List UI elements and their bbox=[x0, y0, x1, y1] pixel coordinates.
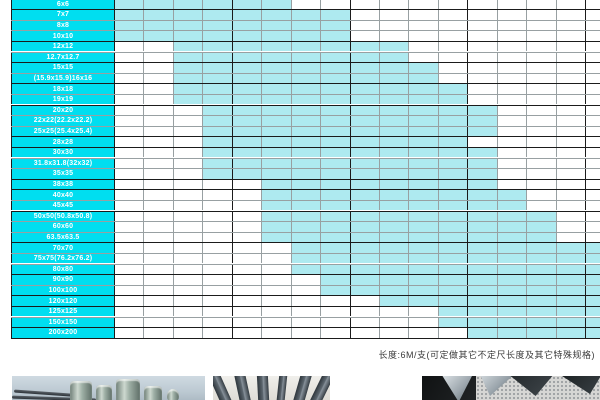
availability-cell bbox=[439, 296, 468, 306]
availability-cell bbox=[321, 137, 350, 147]
availability-cell bbox=[527, 106, 556, 116]
availability-cell bbox=[115, 137, 144, 147]
availability-cell bbox=[174, 169, 203, 179]
availability-cell bbox=[292, 42, 321, 52]
availability-cell bbox=[439, 106, 468, 116]
availability-cell bbox=[144, 116, 173, 126]
availability-cell bbox=[174, 74, 203, 84]
availability-cell bbox=[351, 148, 380, 158]
table-row: 18x18 bbox=[11, 83, 600, 94]
availability-cell bbox=[292, 201, 321, 211]
availability-cell bbox=[292, 63, 321, 73]
angle-profile bbox=[440, 376, 474, 400]
availability-cell bbox=[351, 233, 380, 243]
availability-cell bbox=[144, 74, 173, 84]
availability-cell bbox=[586, 201, 600, 211]
photo-steel-billets bbox=[12, 376, 205, 400]
availability-cell bbox=[468, 42, 497, 52]
availability-cell bbox=[262, 243, 291, 253]
availability-cell bbox=[292, 169, 321, 179]
availability-cell bbox=[144, 222, 173, 232]
availability-cell bbox=[292, 318, 321, 328]
availability-cell bbox=[439, 265, 468, 275]
availability-cell bbox=[527, 74, 556, 84]
availability-cell bbox=[468, 106, 497, 116]
availability-cell bbox=[557, 84, 586, 94]
availability-cell bbox=[498, 275, 527, 285]
availability-cell bbox=[174, 42, 203, 52]
availability-cell bbox=[468, 95, 497, 105]
row-size-label: 30x30 bbox=[11, 148, 115, 158]
availability-cell bbox=[203, 307, 232, 317]
availability-cell bbox=[115, 307, 144, 317]
availability-cell bbox=[586, 254, 600, 264]
availability-cell bbox=[527, 243, 556, 253]
availability-cell bbox=[321, 127, 350, 137]
table-row: 120x120 bbox=[11, 295, 600, 306]
availability-cell bbox=[380, 148, 409, 158]
availability-cell bbox=[498, 84, 527, 94]
row-size-label: 150x150 bbox=[11, 318, 115, 328]
availability-cell bbox=[409, 169, 438, 179]
availability-cell bbox=[203, 74, 232, 84]
row-size-label: 75x75(76.2x76.2) bbox=[11, 254, 115, 264]
availability-cell bbox=[557, 116, 586, 126]
availability-cell bbox=[351, 254, 380, 264]
availability-cell bbox=[527, 53, 556, 63]
availability-cell bbox=[351, 127, 380, 137]
availability-cell bbox=[409, 318, 438, 328]
flat-bar bbox=[213, 376, 238, 400]
table-row: 60x60 bbox=[11, 221, 600, 232]
availability-cell bbox=[586, 318, 600, 328]
availability-cell bbox=[527, 95, 556, 105]
availability-cell bbox=[115, 201, 144, 211]
availability-cell bbox=[203, 31, 232, 41]
availability-cell bbox=[439, 212, 468, 222]
photo-flat-bars bbox=[213, 376, 330, 400]
availability-cell bbox=[321, 222, 350, 232]
availability-cell bbox=[586, 307, 600, 317]
availability-cell bbox=[527, 318, 556, 328]
availability-cell bbox=[115, 21, 144, 31]
row-size-label: 40x40 bbox=[11, 190, 115, 200]
availability-cell bbox=[321, 148, 350, 158]
availability-cell bbox=[203, 243, 232, 253]
availability-cell bbox=[262, 116, 291, 126]
availability-cell bbox=[144, 318, 173, 328]
availability-cell bbox=[468, 180, 497, 190]
availability-cell bbox=[292, 190, 321, 200]
availability-cell bbox=[292, 21, 321, 31]
availability-cell bbox=[233, 318, 262, 328]
availability-cell bbox=[351, 275, 380, 285]
table-row: 20x20 bbox=[11, 105, 600, 116]
availability-cell bbox=[468, 201, 497, 211]
availability-cell bbox=[321, 10, 350, 20]
availability-cell bbox=[557, 296, 586, 306]
row-size-label: 6x6 bbox=[11, 0, 115, 9]
availability-cell bbox=[292, 148, 321, 158]
availability-cell bbox=[380, 307, 409, 317]
availability-cell bbox=[262, 106, 291, 116]
availability-cell bbox=[498, 222, 527, 232]
availability-cell bbox=[292, 233, 321, 243]
availability-cell bbox=[557, 243, 586, 253]
availability-cell bbox=[557, 286, 586, 296]
availability-cell bbox=[586, 21, 600, 31]
availability-cell bbox=[262, 222, 291, 232]
steel-billet bbox=[116, 379, 140, 400]
availability-cell bbox=[409, 42, 438, 52]
availability-cell bbox=[468, 10, 497, 20]
availability-cell bbox=[557, 307, 586, 317]
availability-cell bbox=[174, 84, 203, 94]
steel-billet bbox=[167, 389, 179, 400]
availability-cell bbox=[527, 233, 556, 243]
availability-cell bbox=[409, 275, 438, 285]
row-size-label: 120x120 bbox=[11, 296, 115, 306]
availability-cell bbox=[439, 222, 468, 232]
availability-cell bbox=[557, 42, 586, 52]
availability-cell bbox=[262, 42, 291, 52]
availability-cell bbox=[203, 265, 232, 275]
availability-cell bbox=[557, 106, 586, 116]
availability-cell bbox=[144, 275, 173, 285]
availability-cell bbox=[292, 95, 321, 105]
spec-availability-table: 6x67x78x810x1012x1212.7x12.715x15(15.9x1… bbox=[11, 0, 600, 340]
availability-cell bbox=[380, 212, 409, 222]
availability-cell bbox=[439, 116, 468, 126]
availability-cell bbox=[527, 42, 556, 52]
availability-cell bbox=[144, 106, 173, 116]
availability-cell bbox=[586, 159, 600, 169]
availability-cell bbox=[468, 137, 497, 147]
availability-cell bbox=[203, 190, 232, 200]
availability-cell bbox=[586, 222, 600, 232]
row-size-label: 200x200 bbox=[11, 328, 115, 338]
availability-cell bbox=[439, 63, 468, 73]
availability-cell bbox=[409, 233, 438, 243]
availability-cell bbox=[233, 21, 262, 31]
availability-cell bbox=[527, 10, 556, 20]
availability-cell bbox=[115, 254, 144, 264]
availability-cell bbox=[351, 159, 380, 169]
availability-cell bbox=[351, 190, 380, 200]
availability-cell bbox=[321, 296, 350, 306]
availability-cell bbox=[527, 159, 556, 169]
availability-cell bbox=[409, 159, 438, 169]
availability-cell bbox=[292, 137, 321, 147]
photo-angle-steel bbox=[422, 376, 600, 400]
availability-cell bbox=[115, 212, 144, 222]
availability-cell bbox=[439, 328, 468, 338]
availability-cell bbox=[262, 95, 291, 105]
availability-cell bbox=[115, 148, 144, 158]
availability-cell bbox=[557, 318, 586, 328]
availability-cell bbox=[115, 159, 144, 169]
availability-cell bbox=[174, 328, 203, 338]
table-row: 31.8x31.8(32x32) bbox=[11, 158, 600, 169]
availability-cell bbox=[233, 286, 262, 296]
availability-cell bbox=[321, 21, 350, 31]
availability-cell bbox=[203, 286, 232, 296]
availability-cell bbox=[203, 296, 232, 306]
availability-cell bbox=[351, 31, 380, 41]
availability-cell bbox=[115, 243, 144, 253]
availability-cell bbox=[351, 21, 380, 31]
availability-cell bbox=[557, 201, 586, 211]
table-row: 7x7 bbox=[11, 9, 600, 20]
availability-cell bbox=[351, 222, 380, 232]
availability-cell bbox=[233, 0, 262, 9]
availability-cell bbox=[557, 265, 586, 275]
availability-cell bbox=[586, 106, 600, 116]
availability-cell bbox=[203, 53, 232, 63]
availability-cell bbox=[351, 10, 380, 20]
availability-cell bbox=[203, 137, 232, 147]
availability-cell bbox=[409, 74, 438, 84]
availability-cell bbox=[203, 21, 232, 31]
availability-cell bbox=[527, 31, 556, 41]
row-size-label: 38x38 bbox=[11, 180, 115, 190]
availability-cell bbox=[586, 116, 600, 126]
availability-cell bbox=[321, 74, 350, 84]
row-size-label: 90x90 bbox=[11, 275, 115, 285]
availability-cell bbox=[380, 10, 409, 20]
availability-cell bbox=[262, 296, 291, 306]
availability-cell bbox=[380, 201, 409, 211]
availability-cell bbox=[351, 42, 380, 52]
availability-cell bbox=[527, 0, 556, 9]
availability-cell bbox=[233, 275, 262, 285]
availability-cell bbox=[115, 31, 144, 41]
availability-cell bbox=[292, 74, 321, 84]
availability-cell bbox=[144, 201, 173, 211]
availability-cell bbox=[351, 180, 380, 190]
availability-cell bbox=[586, 328, 600, 338]
availability-cell bbox=[527, 201, 556, 211]
availability-cell bbox=[557, 169, 586, 179]
flat-bar bbox=[234, 376, 254, 400]
table-row: 125x125 bbox=[11, 306, 600, 317]
row-size-label: 19x19 bbox=[11, 95, 115, 105]
availability-cell bbox=[292, 84, 321, 94]
availability-cell bbox=[262, 21, 291, 31]
availability-cell bbox=[262, 201, 291, 211]
availability-cell bbox=[380, 243, 409, 253]
availability-cell bbox=[527, 307, 556, 317]
availability-cell bbox=[233, 42, 262, 52]
availability-cell bbox=[115, 42, 144, 52]
availability-cell bbox=[468, 265, 497, 275]
availability-cell bbox=[351, 328, 380, 338]
availability-cell bbox=[527, 286, 556, 296]
availability-cell bbox=[174, 21, 203, 31]
availability-cell bbox=[557, 328, 586, 338]
availability-cell bbox=[498, 243, 527, 253]
availability-cell bbox=[115, 233, 144, 243]
availability-cell bbox=[498, 106, 527, 116]
availability-cell bbox=[321, 328, 350, 338]
availability-cell bbox=[439, 307, 468, 317]
availability-cell bbox=[409, 95, 438, 105]
availability-cell bbox=[321, 84, 350, 94]
availability-cell bbox=[262, 84, 291, 94]
availability-cell bbox=[380, 63, 409, 73]
availability-cell bbox=[439, 95, 468, 105]
availability-cell bbox=[409, 127, 438, 137]
steel-billet bbox=[96, 385, 112, 400]
availability-cell bbox=[321, 116, 350, 126]
availability-cell bbox=[262, 159, 291, 169]
availability-cell bbox=[233, 212, 262, 222]
availability-cell bbox=[380, 106, 409, 116]
availability-cell bbox=[527, 328, 556, 338]
availability-cell bbox=[233, 296, 262, 306]
availability-cell bbox=[527, 212, 556, 222]
availability-cell bbox=[115, 328, 144, 338]
availability-cell bbox=[557, 95, 586, 105]
availability-cell bbox=[174, 10, 203, 20]
availability-cell bbox=[144, 31, 173, 41]
availability-cell bbox=[380, 127, 409, 137]
availability-cell bbox=[409, 21, 438, 31]
availability-cell bbox=[527, 169, 556, 179]
availability-cell bbox=[557, 74, 586, 84]
availability-cell bbox=[586, 212, 600, 222]
availability-cell bbox=[144, 148, 173, 158]
availability-cell bbox=[380, 254, 409, 264]
availability-cell bbox=[174, 53, 203, 63]
availability-cell bbox=[586, 190, 600, 200]
availability-cell bbox=[586, 148, 600, 158]
availability-cell bbox=[380, 31, 409, 41]
availability-cell bbox=[380, 275, 409, 285]
row-size-label: 25x25(25.4x25.4) bbox=[11, 127, 115, 137]
availability-cell bbox=[380, 116, 409, 126]
availability-cell bbox=[203, 0, 232, 9]
availability-cell bbox=[174, 222, 203, 232]
availability-cell bbox=[557, 233, 586, 243]
availability-cell bbox=[439, 286, 468, 296]
availability-cell bbox=[262, 233, 291, 243]
availability-cell bbox=[233, 159, 262, 169]
availability-cell bbox=[203, 275, 232, 285]
availability-cell bbox=[144, 42, 173, 52]
availability-cell bbox=[144, 159, 173, 169]
table-row: 6x6 bbox=[11, 0, 600, 9]
table-row: 200x200 bbox=[11, 327, 600, 338]
availability-cell bbox=[292, 222, 321, 232]
availability-cell bbox=[262, 180, 291, 190]
availability-cell bbox=[321, 31, 350, 41]
availability-cell bbox=[174, 201, 203, 211]
availability-cell bbox=[144, 84, 173, 94]
availability-cell bbox=[174, 296, 203, 306]
flat-bar bbox=[275, 376, 288, 400]
table-row: 80x80 bbox=[11, 264, 600, 275]
availability-cell bbox=[409, 286, 438, 296]
row-size-label: 18x18 bbox=[11, 84, 115, 94]
availability-cell bbox=[292, 10, 321, 20]
availability-cell bbox=[262, 212, 291, 222]
availability-cell bbox=[498, 180, 527, 190]
availability-cell bbox=[321, 233, 350, 243]
availability-cell bbox=[468, 53, 497, 63]
row-size-label: 28x28 bbox=[11, 137, 115, 147]
availability-cell bbox=[262, 190, 291, 200]
availability-cell bbox=[498, 63, 527, 73]
availability-cell bbox=[144, 233, 173, 243]
availability-cell bbox=[557, 21, 586, 31]
availability-cell bbox=[586, 84, 600, 94]
availability-cell bbox=[586, 265, 600, 275]
availability-cell bbox=[115, 74, 144, 84]
row-size-label: 70x70 bbox=[11, 243, 115, 253]
availability-cell bbox=[115, 63, 144, 73]
availability-cell bbox=[351, 243, 380, 253]
availability-cell bbox=[233, 201, 262, 211]
availability-cell bbox=[468, 21, 497, 31]
availability-cell bbox=[292, 106, 321, 116]
availability-cell bbox=[174, 127, 203, 137]
availability-cell bbox=[144, 127, 173, 137]
availability-cell bbox=[439, 21, 468, 31]
availability-cell bbox=[321, 212, 350, 222]
availability-cell bbox=[468, 243, 497, 253]
availability-cell bbox=[351, 53, 380, 63]
availability-cell bbox=[468, 318, 497, 328]
row-size-label: 45x45 bbox=[11, 201, 115, 211]
availability-cell bbox=[351, 169, 380, 179]
availability-cell bbox=[321, 106, 350, 116]
availability-cell bbox=[292, 265, 321, 275]
availability-cell bbox=[468, 212, 497, 222]
availability-cell bbox=[409, 254, 438, 264]
availability-cell bbox=[557, 31, 586, 41]
availability-cell bbox=[409, 201, 438, 211]
availability-cell bbox=[115, 116, 144, 126]
availability-cell bbox=[233, 10, 262, 20]
availability-cell bbox=[439, 190, 468, 200]
availability-cell bbox=[409, 265, 438, 275]
availability-cell bbox=[498, 10, 527, 20]
availability-cell bbox=[439, 318, 468, 328]
availability-cell bbox=[586, 243, 600, 253]
availability-cell bbox=[203, 95, 232, 105]
availability-cell bbox=[439, 243, 468, 253]
availability-cell bbox=[262, 127, 291, 137]
availability-cell bbox=[498, 148, 527, 158]
availability-cell bbox=[586, 286, 600, 296]
availability-cell bbox=[262, 328, 291, 338]
availability-cell bbox=[351, 137, 380, 147]
availability-cell bbox=[203, 84, 232, 94]
availability-cell bbox=[409, 0, 438, 9]
row-size-label: 12.7x12.7 bbox=[11, 53, 115, 63]
availability-cell bbox=[586, 53, 600, 63]
availability-cell bbox=[144, 10, 173, 20]
availability-cell bbox=[144, 95, 173, 105]
availability-cell bbox=[380, 137, 409, 147]
availability-cell bbox=[380, 84, 409, 94]
availability-cell bbox=[409, 10, 438, 20]
availability-cell bbox=[203, 63, 232, 73]
table-row: 19x19 bbox=[11, 94, 600, 105]
availability-cell bbox=[380, 222, 409, 232]
availability-cell bbox=[468, 286, 497, 296]
